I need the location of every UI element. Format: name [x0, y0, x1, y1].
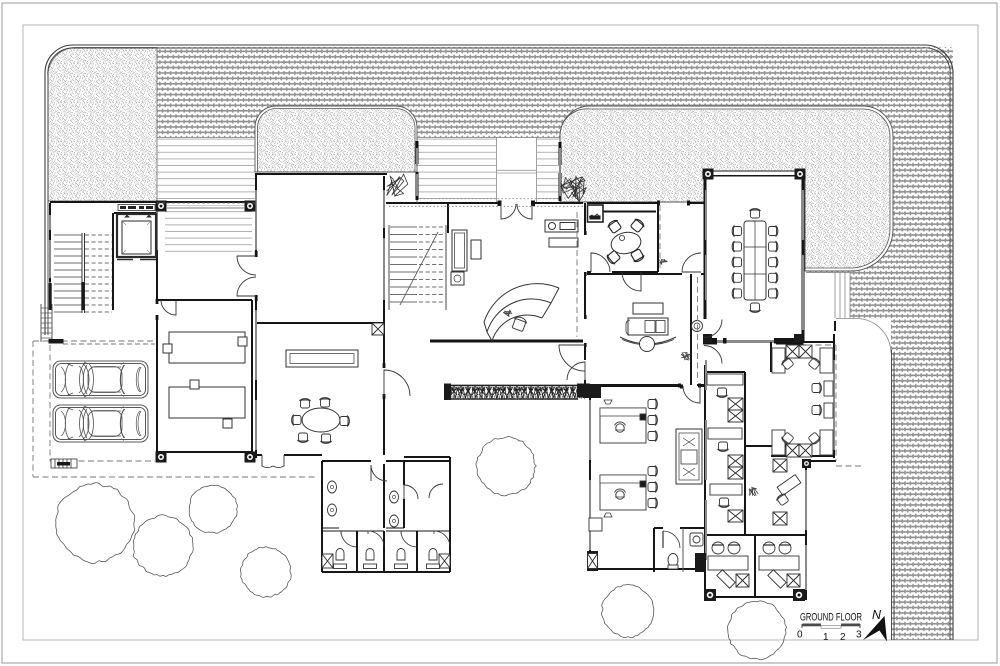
svg-text:N: N: [872, 608, 882, 622]
svg-text:3: 3: [856, 630, 862, 641]
svg-text:GROUND FLOOR: GROUND FLOOR: [800, 612, 862, 624]
svg-text:1: 1: [823, 632, 829, 643]
svg-text:0: 0: [797, 630, 803, 641]
svg-text:2: 2: [840, 632, 846, 643]
